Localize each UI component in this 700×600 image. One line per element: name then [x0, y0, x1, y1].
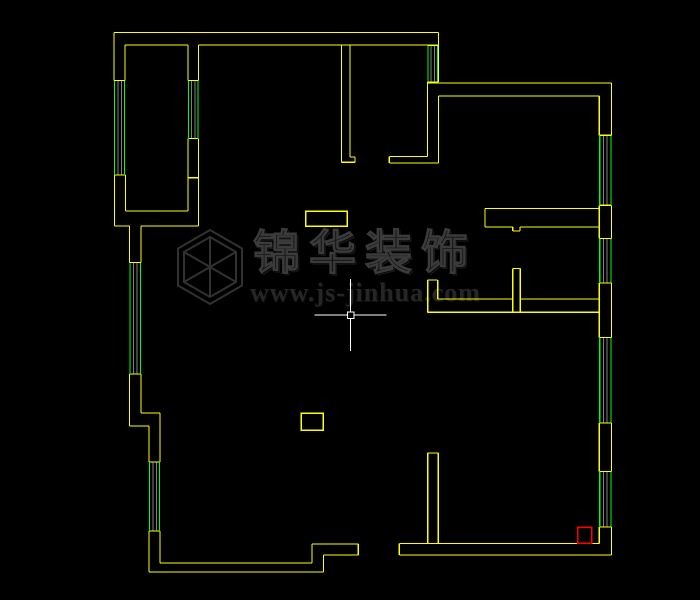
window-line-group [115, 46, 612, 531]
window-mullion-line-group [118, 46, 607, 531]
crosshair-cursor[interactable] [315, 279, 387, 351]
wall-pier-box [306, 211, 348, 226]
selection-highlight-box [578, 527, 592, 543]
cad-viewport[interactable]: 锦华装饰 www.js-jinhua.com [0, 0, 700, 600]
pickbox [347, 312, 354, 319]
floor-plan-drawing[interactable] [0, 0, 700, 600]
wall-pier-box [301, 413, 323, 430]
